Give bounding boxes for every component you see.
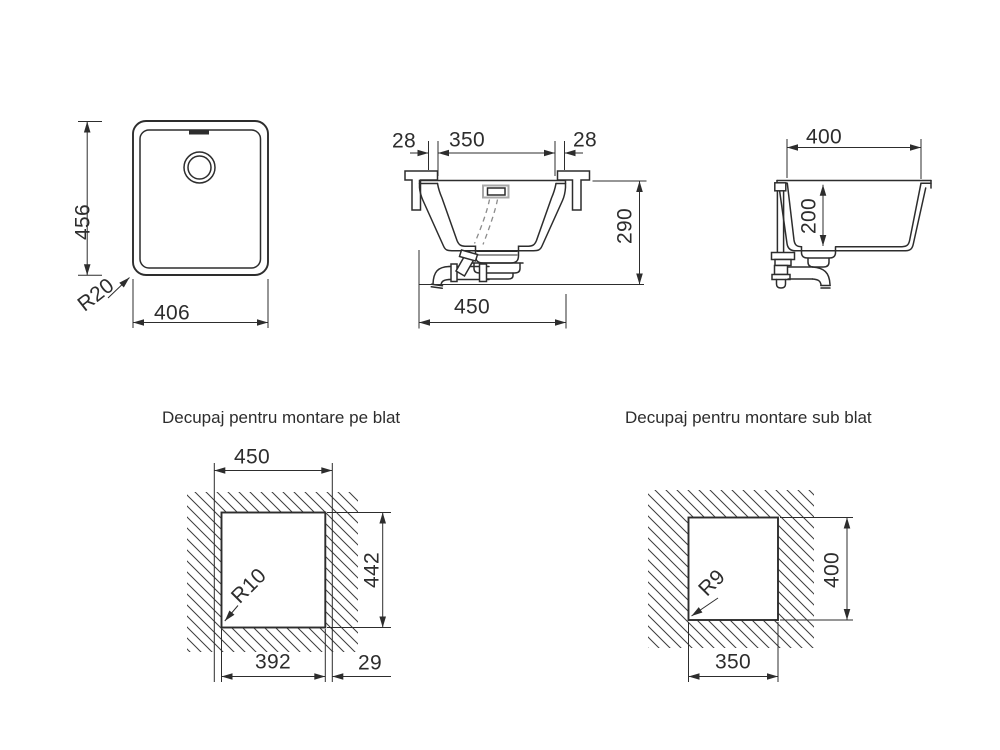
front-section-linework [405, 141, 647, 329]
drawing-linework [0, 0, 1000, 750]
title-undermount-template: Decupaj pentru montare sub blat [625, 409, 872, 428]
dim-topmount-height: 442 [362, 552, 383, 588]
dim-undermount-cutout-width: 350 [715, 652, 751, 673]
title-topmount-template: Decupaj pentru montare pe blat [162, 409, 400, 428]
sink-technical-drawing: 456 R20 406 28 350 28 290 450 400 200 De… [0, 0, 1000, 750]
dim-undermount-height: 400 [822, 552, 843, 588]
dim-front-right-overhang: 28 [573, 130, 597, 151]
dim-plan-width: 406 [154, 303, 190, 324]
side-section-linework [772, 139, 932, 288]
dim-front-overall-width: 450 [454, 297, 490, 318]
dim-plan-height: 456 [73, 204, 94, 240]
dim-side-width: 400 [806, 127, 842, 148]
dim-topmount-overall-width: 450 [234, 447, 270, 468]
dim-front-depth: 290 [615, 208, 636, 244]
dim-side-bowl-depth: 200 [799, 198, 820, 234]
dim-front-left-overhang: 28 [392, 131, 416, 152]
dim-topmount-edge-offset: 29 [358, 653, 382, 674]
dim-topmount-cutout-width: 392 [255, 652, 291, 673]
dim-front-cutout-width: 350 [449, 130, 485, 151]
